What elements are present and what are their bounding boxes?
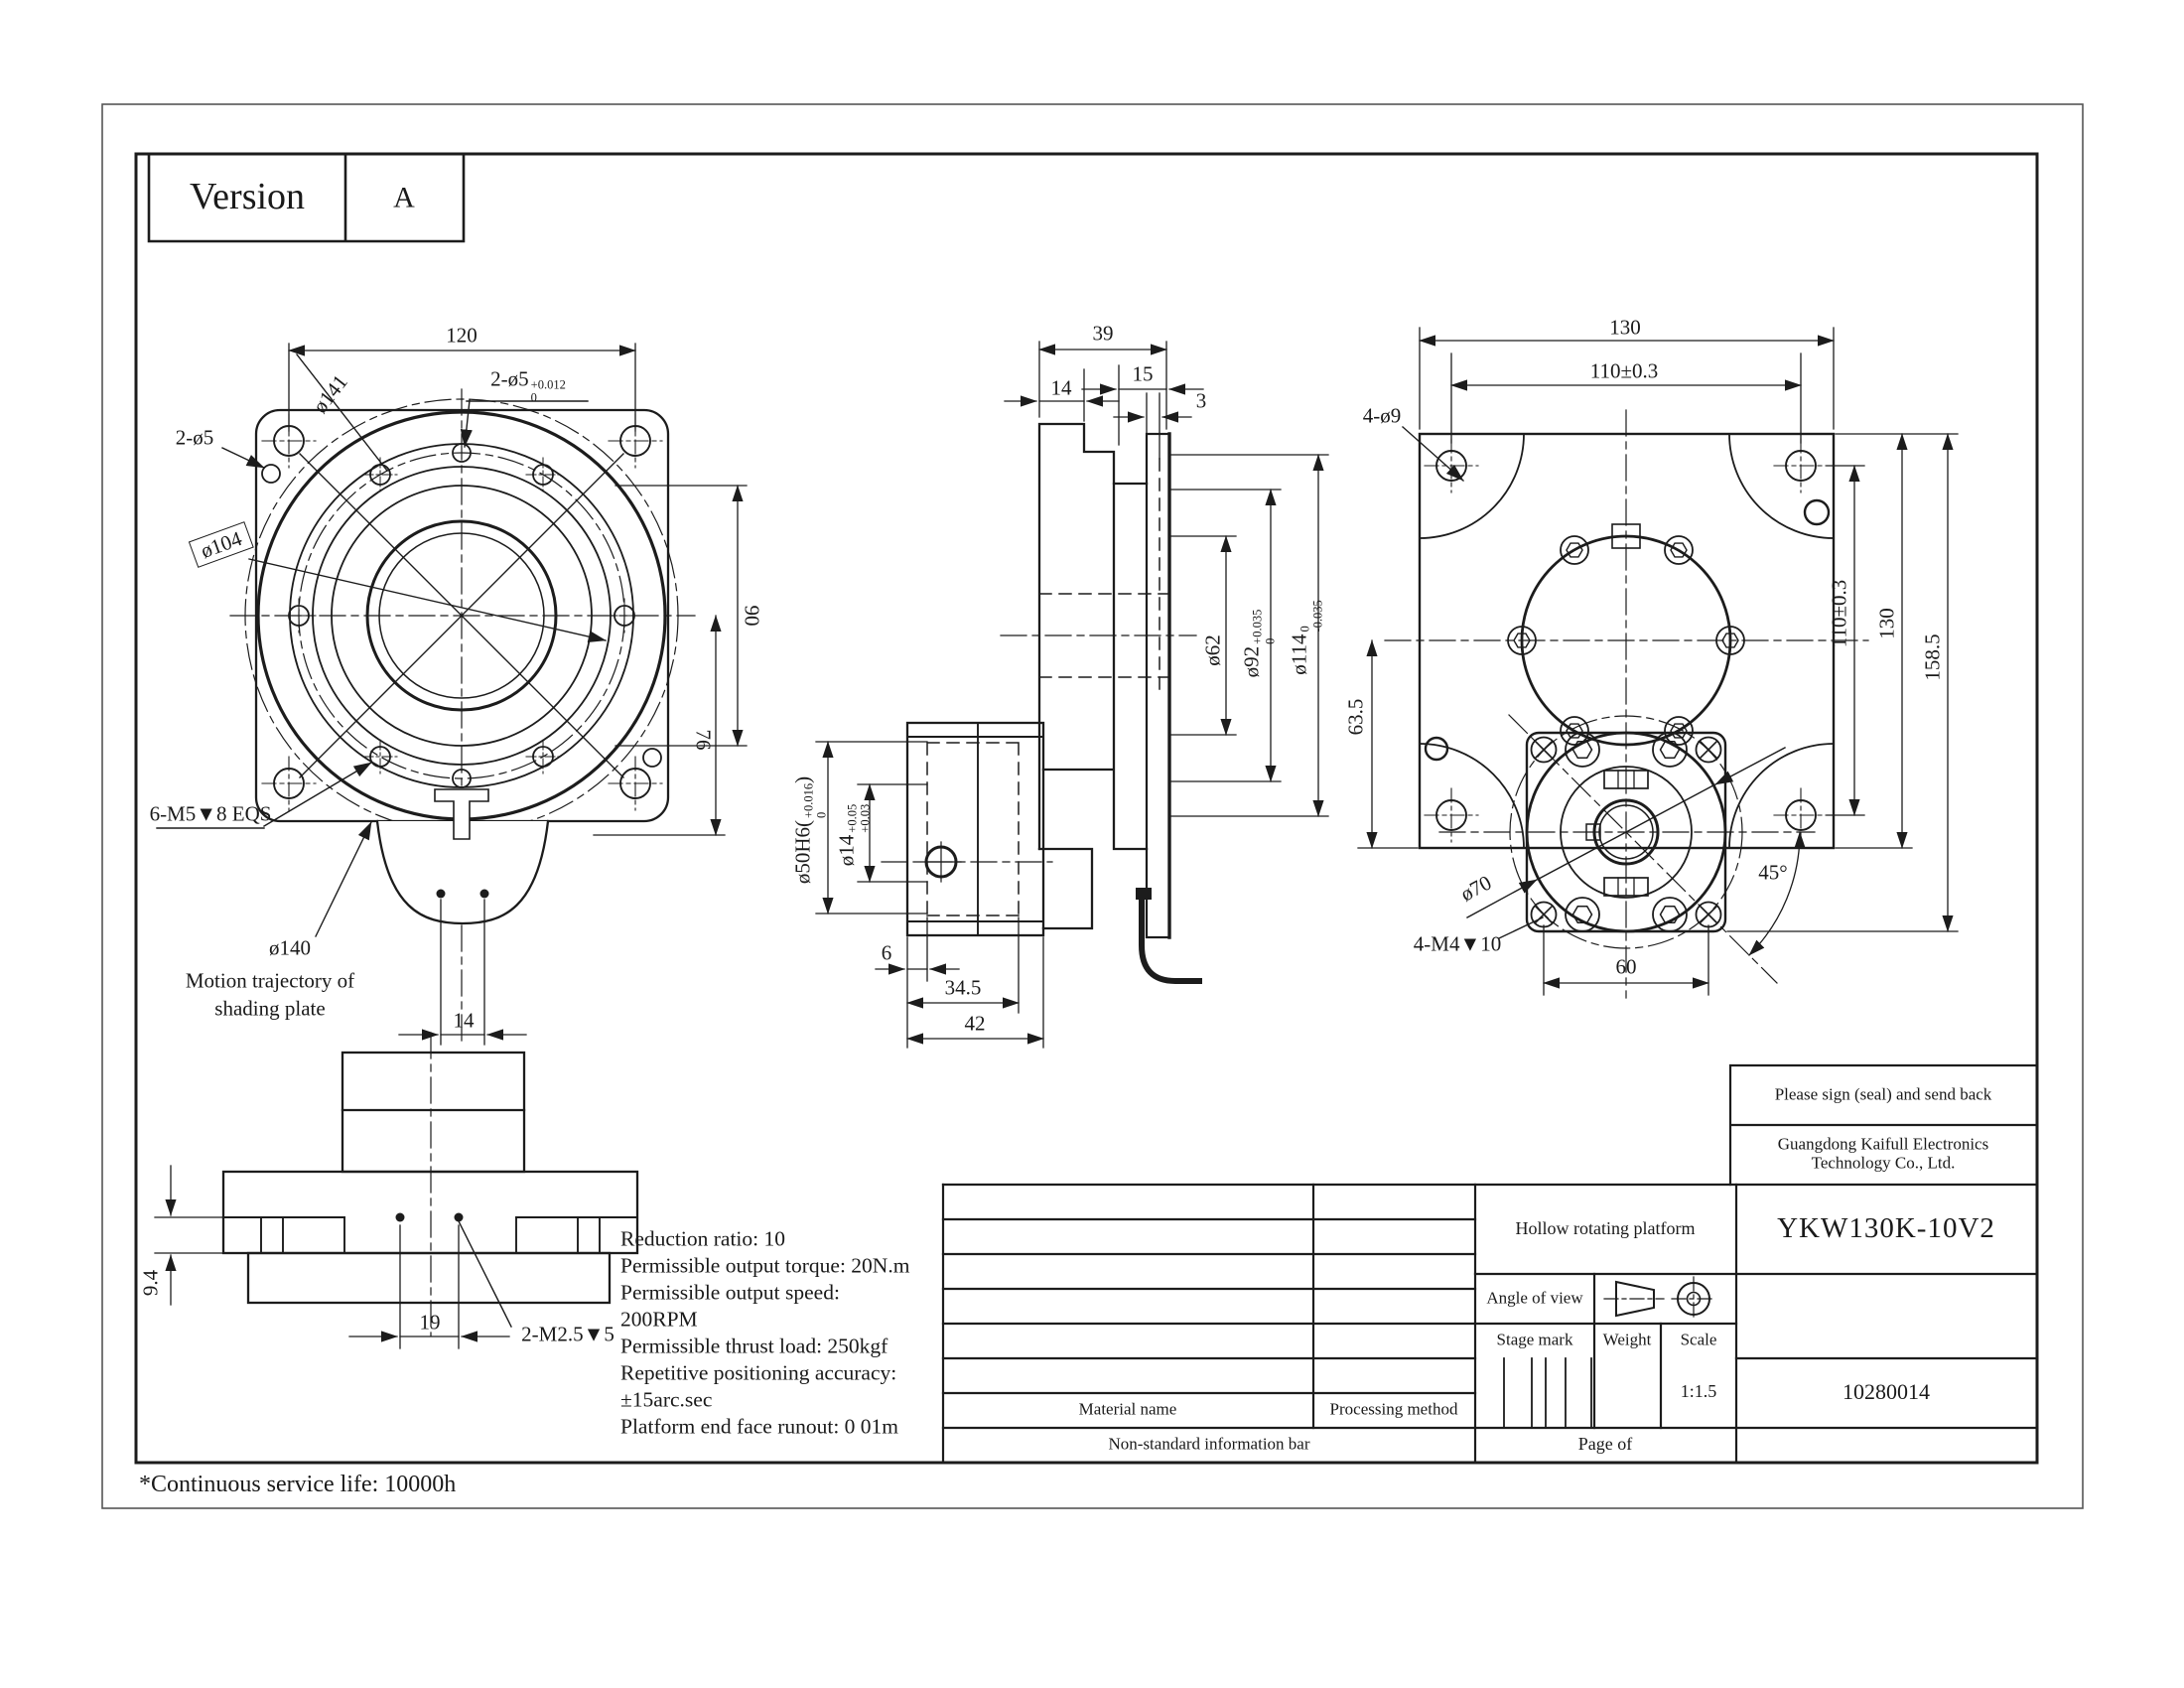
spec-line: Permissible thrust load: 250kgf <box>620 1335 887 1359</box>
rear-dim-130-right: 130 <box>1875 608 1898 639</box>
front-label-pin-holes: 2-ø5 <box>176 426 214 449</box>
spec-line: Platform end face runout: 0 01m <box>620 1415 898 1440</box>
front-label-motion-line2: shading plate <box>214 997 325 1020</box>
tol-sub: 0 <box>531 392 566 405</box>
section-dim-42: 42 <box>965 1012 986 1035</box>
spec-line: 200RPM <box>620 1308 698 1333</box>
section-dim-diameter-14: ø14+0.05+0.03 <box>835 804 872 866</box>
scale-label: Scale <box>1681 1332 1717 1350</box>
model-number: YKW130K-10V2 <box>1777 1213 1995 1245</box>
section-dim-15: 15 <box>1133 362 1154 385</box>
processing-method-label: Processing method <box>1330 1401 1458 1420</box>
drawing-canvas <box>0 0 2184 1688</box>
rear-dim-63-5: 63.5 <box>1344 699 1367 736</box>
front-dim-14: 14 <box>454 1009 475 1032</box>
rear-dim-130-top: 130 <box>1609 316 1641 339</box>
part-number: 10280014 <box>1843 1380 1930 1404</box>
section-dim-diameter-62: ø62 <box>1201 634 1224 666</box>
scale-value: 1:1.5 <box>1681 1382 1717 1402</box>
company-name: Guangdong Kaifull Electronics Technology… <box>1744 1135 2022 1172</box>
tol-stack: +0.0160 <box>802 783 828 818</box>
spec-line: ±15arc.sec <box>620 1388 712 1413</box>
sign-note: Please sign (seal) and send back <box>1775 1086 1992 1105</box>
front-dim-76: 76 <box>691 730 714 751</box>
front-label-diameter-140: ø140 <box>269 936 311 959</box>
rear-dim-110-right: 110±0.3 <box>1828 580 1850 648</box>
drawing-sheet: Version A *Continuous service life: 1000… <box>0 0 2184 1688</box>
section-dim-39: 39 <box>1093 322 1114 345</box>
rear-view <box>1358 328 1958 998</box>
rear-label-holes-4d9: 4-ø9 <box>1363 404 1402 427</box>
section-dim-14: 14 <box>1051 376 1072 399</box>
tol-stack: +0.05+0.03 <box>846 804 872 833</box>
tol-sub: -0.035 <box>1312 600 1325 632</box>
tol-stack: +0.0350 <box>1251 610 1277 644</box>
angle-of-view-label: Angle of view <box>1483 1290 1586 1309</box>
section-view <box>816 342 1328 1048</box>
section-dim-34-5: 34.5 <box>945 976 982 999</box>
bottom-view <box>155 1033 637 1348</box>
tol-stack: +0.0120 <box>531 378 566 404</box>
tol-pre: ø92 <box>1239 646 1263 678</box>
rear-dim-60: 60 <box>1616 955 1637 978</box>
section-dim-diameter-50H6: ø50H6(+0.0160) <box>791 776 828 884</box>
tol-pre: ø50H6( <box>790 820 814 884</box>
spec-line: Repetitive positioning accuracy: <box>620 1361 896 1386</box>
weight-label: Weight <box>1603 1332 1652 1350</box>
rear-dim-45deg: 45° <box>1758 861 1787 884</box>
tol-pre: ø14 <box>834 835 858 867</box>
bottom-dim-9-4: 9.4 <box>139 1270 162 1296</box>
non-standard-bar-label: Non-standard information bar <box>1109 1436 1310 1455</box>
front-view <box>157 344 747 1045</box>
front-label-pin-tolerance: 2-ø5+0.0120 <box>490 367 566 404</box>
page-of-label: Page of <box>1578 1435 1632 1455</box>
rear-dim-158-5: 158.5 <box>1921 633 1944 680</box>
tol-pre: ø114 <box>1287 634 1310 675</box>
tol-sub: +0.03 <box>860 804 873 833</box>
frame <box>102 104 2083 1508</box>
bottom-dim-19: 19 <box>420 1311 441 1334</box>
section-dim-3: 3 <box>1196 389 1207 412</box>
front-dim-120: 120 <box>446 324 478 347</box>
tol-pre: 2-ø5 <box>490 366 529 390</box>
front-label-screw-pattern: 6-M5▼8 EQS <box>150 802 272 825</box>
spec-line: Reduction ratio: 10 <box>620 1227 785 1252</box>
version-label: Version <box>190 177 305 218</box>
tol-post: ) <box>790 776 814 783</box>
spec-line: Permissible output speed: <box>620 1281 840 1306</box>
rear-label-screws-m4: 4-M4▼10 <box>1414 932 1501 955</box>
material-name-label: Material name <box>1079 1401 1177 1420</box>
rear-dim-110-top: 110±0.3 <box>1590 359 1659 382</box>
footnote: *Continuous service life: 10000h <box>139 1472 456 1498</box>
tol-stack: 0-0.035 <box>1298 600 1324 632</box>
section-dim-diameter-114: ø1140-0.035 <box>1288 600 1324 675</box>
section-dim-diameter-92: ø92+0.0350 <box>1240 610 1277 678</box>
tol-sub: 0 <box>816 783 829 818</box>
spec-line: Permissible output torque: 20N.m <box>620 1254 909 1279</box>
bottom-label-screws: 2-M2.5▼5 <box>521 1323 614 1345</box>
version-value: A <box>393 182 415 214</box>
tol-sub: 0 <box>1265 610 1278 644</box>
product-name: Hollow rotating platform <box>1516 1219 1696 1239</box>
section-dim-6: 6 <box>882 941 892 964</box>
front-dim-90: 90 <box>740 606 762 627</box>
stage-mark-label: Stage mark <box>1497 1332 1573 1350</box>
front-label-motion-line1: Motion trajectory of <box>186 969 354 992</box>
